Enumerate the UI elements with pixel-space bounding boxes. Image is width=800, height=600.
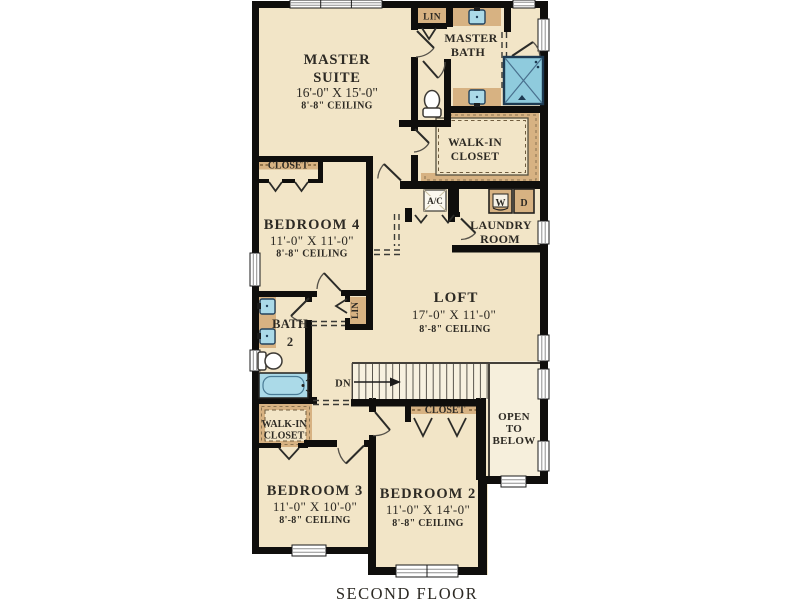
svg-text:MASTER: MASTER [304,52,371,68]
svg-text:BEDROOM 4: BEDROOM 4 [264,217,360,233]
svg-text:A/C: A/C [427,196,443,206]
svg-text:11'-0" X 11'-0": 11'-0" X 11'-0" [270,233,354,248]
svg-text:MASTER: MASTER [444,31,497,45]
svg-text:CLOSET: CLOSET [268,161,309,172]
svg-text:11'-0" X 14'-0": 11'-0" X 14'-0" [386,502,470,517]
svg-text:16'-0" X 15'-0": 16'-0" X 15'-0" [296,85,378,100]
svg-text:ROOM: ROOM [480,232,520,246]
svg-text:BEDROOM 3: BEDROOM 3 [267,483,363,499]
svg-text:8'-8" CEILING: 8'-8" CEILING [276,249,347,260]
svg-text:11'-0" X 10'-0": 11'-0" X 10'-0" [273,499,357,514]
svg-text:BATH: BATH [451,45,486,59]
svg-text:BATH: BATH [272,317,308,331]
svg-text:OPEN: OPEN [498,411,530,423]
svg-text:SUITE: SUITE [313,70,361,86]
svg-text:8'-8" CEILING: 8'-8" CEILING [301,101,372,112]
svg-text:D: D [520,198,527,209]
svg-text:WALK-IN: WALK-IN [448,137,502,149]
svg-text:BEDROOM 2: BEDROOM 2 [380,486,476,502]
svg-text:CLOSET: CLOSET [264,431,305,442]
svg-text:BELOW: BELOW [492,435,535,447]
svg-text:SECOND FLOOR: SECOND FLOOR [336,584,478,600]
svg-text:LOFT: LOFT [434,290,479,306]
svg-text:2: 2 [287,335,293,349]
svg-text:W: W [496,198,506,209]
svg-text:8'-8" CEILING: 8'-8" CEILING [419,324,490,335]
svg-text:8'-8" CEILING: 8'-8" CEILING [279,515,350,526]
svg-text:8'-8" CEILING: 8'-8" CEILING [392,518,463,529]
svg-text:LIN: LIN [423,13,441,23]
svg-text:17'-0" X 11'-0": 17'-0" X 11'-0" [412,307,496,322]
svg-text:CLOSET: CLOSET [451,151,499,163]
svg-text:CLOSET: CLOSET [425,405,466,416]
svg-text:DN: DN [335,379,351,390]
svg-text:LAUNDRY: LAUNDRY [470,218,532,232]
svg-text:TO: TO [506,423,522,435]
svg-text:LIN: LIN [351,302,361,319]
svg-text:WALK-IN: WALK-IN [261,419,307,430]
